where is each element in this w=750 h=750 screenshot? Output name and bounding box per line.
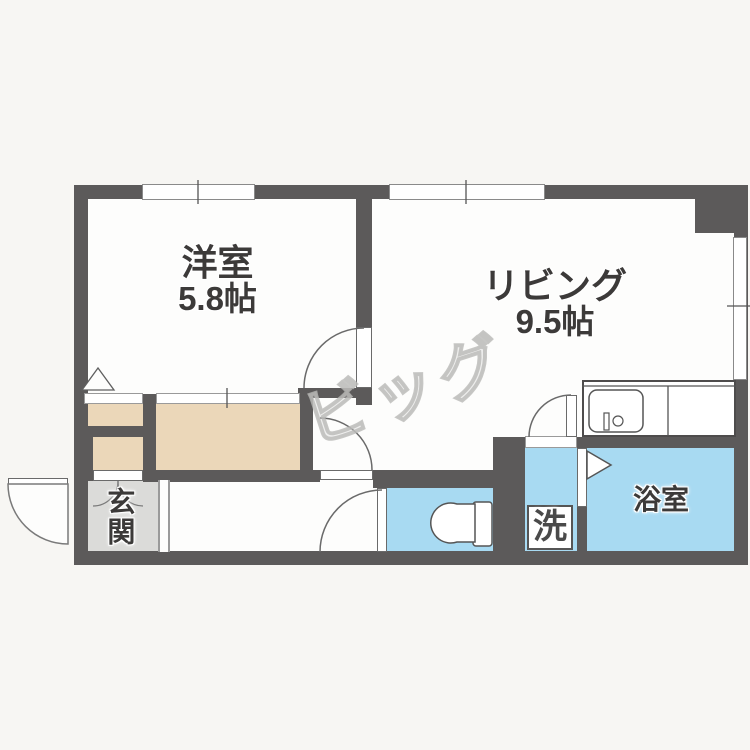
window-icon-top-left (142, 184, 255, 200)
laundry-label: 洗 (533, 510, 567, 546)
wall-between-rooms (356, 199, 372, 327)
entrance-door-leaf (8, 478, 68, 486)
hallway-door-leaf (320, 470, 373, 480)
shoe-cabinet (93, 470, 143, 481)
living-lower-floor (387, 437, 493, 472)
closet-opening-left (84, 393, 143, 404)
western-room-label: 洋室 5.8帖 (110, 244, 325, 316)
living-room-size: 9.5帖 (445, 305, 665, 340)
window-icon-top-right (389, 184, 545, 200)
wall-bathdoor-lower (577, 507, 587, 552)
wall-kitchen-bottom (577, 437, 748, 448)
wall-toilet-top (373, 470, 493, 488)
entrance-label: 玄関 (105, 487, 134, 547)
entrance-step (158, 480, 170, 552)
wall-closet-divider (143, 394, 156, 482)
laundry-box: 洗 (527, 505, 573, 550)
bathroom-label: 浴室 (601, 485, 721, 514)
toilet-room-floor (387, 488, 493, 552)
wall-toilet-right (493, 437, 525, 552)
window-icon-right-wall (733, 237, 747, 380)
wall-bottom (74, 551, 748, 565)
wall-left (74, 185, 88, 551)
hallway-floor (158, 480, 377, 552)
closet-large (156, 404, 300, 470)
western-room-size: 5.8帖 (110, 282, 325, 317)
wall-closet-left (84, 437, 93, 481)
laundry-door-threshold (525, 436, 577, 448)
door-swing-arc-icon-entrance (8, 484, 68, 544)
western-room-name: 洋室 (110, 244, 325, 282)
wall-closet-mid (74, 426, 143, 437)
closet-small-lower (93, 437, 143, 470)
kitchen-counter (582, 380, 736, 437)
bath-folding-door (577, 448, 587, 507)
floorplan-canvas: ビッグ 洋室 5.8帖 リビング 9.5帖 浴室 洗 玄関 (0, 0, 750, 750)
laundry-door-leaf (566, 395, 577, 437)
toilet-door-leaf (377, 488, 387, 552)
closet-opening-right (156, 393, 300, 404)
living-room-name: リビング (445, 267, 665, 305)
living-room-label: リビング 9.5帖 (445, 267, 665, 339)
closet-small-upper (84, 404, 143, 426)
